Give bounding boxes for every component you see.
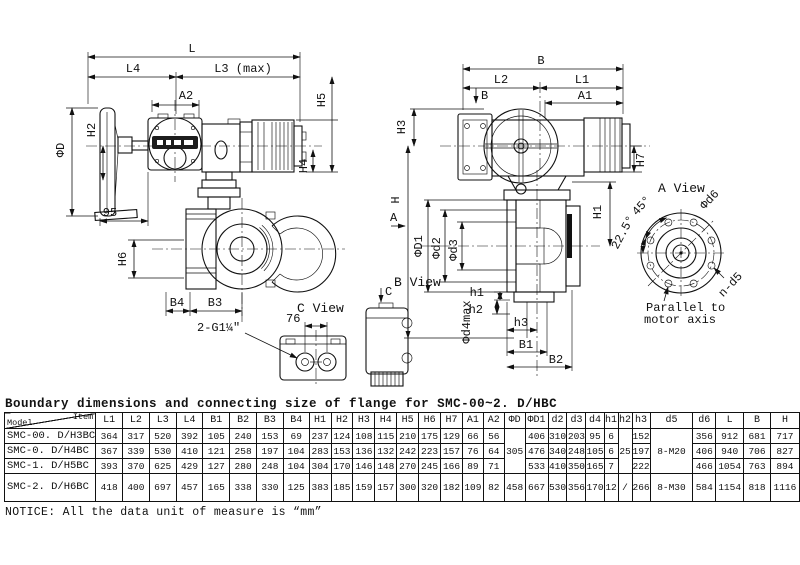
dim-label-L: L xyxy=(188,42,195,56)
table-cell: 383 xyxy=(309,474,331,502)
dim-label-phid2: Φd2 xyxy=(430,237,444,259)
dim-label-76: 76 xyxy=(286,312,300,326)
dim-label-phiD1: ΦD1 xyxy=(412,235,426,257)
table-cell: 1154 xyxy=(716,474,744,502)
table-cell: 697 xyxy=(149,474,176,502)
table-cell: 6 xyxy=(604,429,618,444)
table-cell: 270 xyxy=(397,459,419,474)
table-cell: 124 xyxy=(331,429,353,444)
col-header-B3: B3 xyxy=(257,413,284,429)
col-header-L2: L2 xyxy=(123,413,150,429)
table-cell: 132 xyxy=(375,444,397,459)
table-cell: 146 xyxy=(353,459,375,474)
a-view-flange: A View 45° 22.5° Φd6 n-d5 Parallel to mo… xyxy=(609,181,746,327)
table-cell: 197 xyxy=(257,444,284,459)
dim-label-B: B xyxy=(537,54,544,68)
table-row: SMC-2. D/H6BC418400697457165338330125383… xyxy=(5,474,800,502)
table-cell: 165 xyxy=(203,474,230,502)
table-cell: 367 xyxy=(96,444,123,459)
table-cell: 458 xyxy=(504,474,525,502)
table-cell: 339 xyxy=(123,444,150,459)
table-cell: 89 xyxy=(462,459,483,474)
dim-label-H5: H5 xyxy=(315,93,329,107)
dim-label-h3: h3 xyxy=(514,316,528,330)
table-cell: 7 xyxy=(604,459,618,474)
c-view-detail: C View 76 xyxy=(280,301,346,386)
table-cell: 258 xyxy=(230,444,257,459)
table-cell: 153 xyxy=(331,444,353,459)
col-header-A2: A2 xyxy=(483,413,504,429)
col-header-B4: B4 xyxy=(283,413,309,429)
right-view-front xyxy=(420,82,650,378)
dim-label-L1: L1 xyxy=(575,73,589,87)
table-cell: 170 xyxy=(586,474,604,502)
table-cell: 115 xyxy=(375,429,397,444)
table-cell: 406 xyxy=(693,444,716,459)
table-cell: 340 xyxy=(548,444,567,459)
table-cell: 71 xyxy=(483,459,504,474)
dim-label-H2: H2 xyxy=(85,123,99,137)
col-header-d2: d2 xyxy=(548,413,567,429)
table-cell: 584 xyxy=(693,474,716,502)
table-cell: 8-M30 xyxy=(650,474,693,502)
row-model-label: SMC-1. D/H5BC xyxy=(5,459,96,474)
col-header-ΦD: ΦD xyxy=(504,413,525,429)
dim-label-A2: A2 xyxy=(179,89,193,103)
col-header-H5: H5 xyxy=(397,413,419,429)
col-header-L3: L3 xyxy=(149,413,176,429)
col-header-H4: H4 xyxy=(375,413,397,429)
table-cell: 152 xyxy=(632,429,650,444)
table-cell: 418 xyxy=(96,474,123,502)
col-header-A1: A1 xyxy=(462,413,483,429)
right-view-dimensions: B L2 L1 A1 B H3 H A H1 H7 ΦD1 xyxy=(389,54,648,371)
dim-label-phiD: ΦD xyxy=(54,143,68,157)
model-item-header: Item Model xyxy=(5,413,96,429)
table-cell: 66 xyxy=(462,429,483,444)
table-cell: 392 xyxy=(176,429,203,444)
dim-label-H1: H1 xyxy=(591,205,605,219)
dim-label-L4: L4 xyxy=(126,62,140,76)
dim-label-H6: H6 xyxy=(116,252,130,266)
table-cell: 104 xyxy=(283,459,309,474)
table-cell: 136 xyxy=(353,444,375,459)
table-cell: 763 xyxy=(744,459,771,474)
dim-label-B2: B2 xyxy=(549,353,563,367)
dim-label-H3: H3 xyxy=(395,120,409,134)
table-cell: 12 xyxy=(604,474,618,502)
col-header-d5: d5 xyxy=(650,413,693,429)
dim-label-h1: h1 xyxy=(470,286,484,300)
dim-label-45deg: 45° xyxy=(629,193,654,218)
section-mark-B: B xyxy=(481,89,488,103)
item-header-label: Item xyxy=(73,413,93,422)
table-cell: 266 xyxy=(632,474,650,502)
dim-label-A1: A1 xyxy=(578,89,592,103)
table-cell: 280 xyxy=(230,459,257,474)
table-cell: 56 xyxy=(483,429,504,444)
table-cell: 203 xyxy=(567,429,586,444)
col-header-ΦD1: ΦD1 xyxy=(525,413,548,429)
table-cell: 69 xyxy=(283,429,309,444)
section-mark-C: C xyxy=(385,285,392,299)
dim-label-phid4max: Φd4max xyxy=(460,300,474,343)
row-model-label: SMC-2. D/H6BC xyxy=(5,474,96,502)
col-header-h1: h1 xyxy=(604,413,618,429)
table-cell: 310 xyxy=(548,429,567,444)
table-cell: 400 xyxy=(123,474,150,502)
col-header-H6: H6 xyxy=(419,413,441,429)
col-header-L: L xyxy=(716,413,744,429)
table-cell: 6 xyxy=(604,444,618,459)
table-cell: 320 xyxy=(419,474,441,502)
col-header-L1: L1 xyxy=(96,413,123,429)
dim-label-H7: H7 xyxy=(634,153,648,167)
col-header-B2: B2 xyxy=(230,413,257,429)
table-cell: 370 xyxy=(123,459,150,474)
table-cell: 109 xyxy=(462,474,483,502)
col-header-H7: H7 xyxy=(441,413,463,429)
table-cell: 429 xyxy=(176,459,203,474)
table-cell: 356 xyxy=(567,474,586,502)
table-header-row: Item Model L1L2L3L4B1B2B3B4H1H2H3H4H5H6H… xyxy=(5,413,800,429)
left-view-side xyxy=(86,100,345,322)
table-cell: 148 xyxy=(375,459,397,474)
table-cell: 818 xyxy=(744,474,771,502)
dim-label-H4: H4 xyxy=(297,159,311,173)
table-cell: 283 xyxy=(309,444,331,459)
table-cell: 105 xyxy=(586,444,604,459)
table-cell: 410 xyxy=(176,444,203,459)
row-model-label: SMC-00. D/H3BC xyxy=(5,429,96,444)
dim-label-L3max: L3 (max) xyxy=(214,62,272,76)
table-cell: 940 xyxy=(716,444,744,459)
table-cell: 1054 xyxy=(716,459,744,474)
table-cell: 197 xyxy=(632,444,650,459)
table-cell: 305 xyxy=(504,429,525,474)
table-cell: 717 xyxy=(770,429,799,444)
table-cell: 681 xyxy=(744,429,771,444)
table-cell: 894 xyxy=(770,459,799,474)
table-cell: 185 xyxy=(331,474,353,502)
table-cell: 8-M20 xyxy=(650,429,693,474)
col-header-d4: d4 xyxy=(586,413,604,429)
col-header-d6: d6 xyxy=(693,413,716,429)
table-cell: 223 xyxy=(419,444,441,459)
table-cell: 245 xyxy=(419,459,441,474)
table-cell: 104 xyxy=(283,444,309,459)
table-cell: 1116 xyxy=(770,474,799,502)
table-cell: 210 xyxy=(397,429,419,444)
table-cell: 248 xyxy=(567,444,586,459)
thread-callout: 2-G1¼" xyxy=(197,321,240,335)
table-cell: 350 xyxy=(567,459,586,474)
table-cell: 520 xyxy=(149,429,176,444)
table-cell: 827 xyxy=(770,444,799,459)
table-cell: 157 xyxy=(441,444,463,459)
table-cell: 706 xyxy=(744,444,771,459)
col-header-d3: d3 xyxy=(567,413,586,429)
table-cell: 129 xyxy=(441,429,463,444)
table-cell: 25 xyxy=(618,429,632,474)
table-cell: 330 xyxy=(257,474,284,502)
table-cell: 105 xyxy=(203,429,230,444)
row-model-label: SMC-0. D/H4BC xyxy=(5,444,96,459)
dim-label-L2: L2 xyxy=(494,73,508,87)
table-cell: 338 xyxy=(230,474,257,502)
table-cell: 166 xyxy=(441,459,463,474)
table-cell: 165 xyxy=(586,459,604,474)
table-cell: 300 xyxy=(397,474,419,502)
section-mark-A: A xyxy=(390,211,398,225)
dim-label-phid3: Φd3 xyxy=(447,239,461,261)
col-header-H1: H1 xyxy=(309,413,331,429)
col-header-B1: B1 xyxy=(203,413,230,429)
table-cell: 364 xyxy=(96,429,123,444)
table-cell: 317 xyxy=(123,429,150,444)
table-cell: 393 xyxy=(96,459,123,474)
b-view-title: B View xyxy=(394,275,441,290)
table-cell: 457 xyxy=(176,474,203,502)
table-cell: 476 xyxy=(525,444,548,459)
table-cell: 157 xyxy=(375,474,397,502)
col-header-H2: H2 xyxy=(331,413,353,429)
a-view-title: A View xyxy=(658,181,705,196)
table-cell: 108 xyxy=(353,429,375,444)
dim-label-95: 95 xyxy=(103,206,117,220)
table-cell: 410 xyxy=(548,459,567,474)
dim-label-H: H xyxy=(389,196,403,203)
actuator-dimension-drawing: L L4 L3 (max) A2 H5 H4 H2 ΦD 95 xyxy=(0,0,800,396)
table-cell: 159 xyxy=(353,474,375,502)
dim-label-B4: B4 xyxy=(170,296,184,310)
table-cell: 222 xyxy=(632,459,650,474)
col-header-H3: H3 xyxy=(353,413,375,429)
col-header-L4: L4 xyxy=(176,413,203,429)
col-header-h3: h3 xyxy=(632,413,650,429)
col-header-h2: h2 xyxy=(618,413,632,429)
table-cell: 170 xyxy=(331,459,353,474)
table-cell: 406 xyxy=(525,429,548,444)
model-header-label: Model xyxy=(7,419,33,428)
dimension-table: Item Model L1L2L3L4B1B2B3B4H1H2H3H4H5H6H… xyxy=(4,412,800,502)
table-cell: 530 xyxy=(149,444,176,459)
table-cell: 175 xyxy=(419,429,441,444)
table-cell: 237 xyxy=(309,429,331,444)
table-cell: 95 xyxy=(586,429,604,444)
dim-label-B3: B3 xyxy=(208,296,222,310)
table-cell: 121 xyxy=(203,444,230,459)
table-cell: 240 xyxy=(230,429,257,444)
table-cell: / xyxy=(618,474,632,502)
notice-text: NOTICE: All the data unit of measure is … xyxy=(5,506,800,519)
table-cell: 466 xyxy=(693,459,716,474)
table-cell: 912 xyxy=(716,429,744,444)
left-view-dimensions: L L4 L3 (max) A2 H5 H4 H2 ΦD 95 xyxy=(54,42,338,358)
table-title: Boundary dimensions and connecting size … xyxy=(5,397,800,411)
b-view-detail: B View C xyxy=(366,275,441,386)
table-cell: 64 xyxy=(483,444,504,459)
table-cell: 356 xyxy=(693,429,716,444)
dim-label-22-5deg: 22.5° xyxy=(609,213,638,251)
table-row: SMC-00. D/H3BC36431752039210524015369237… xyxy=(5,429,800,444)
table-cell: 242 xyxy=(397,444,419,459)
table-cell: 182 xyxy=(441,474,463,502)
table-cell: 127 xyxy=(203,459,230,474)
table-cell: 667 xyxy=(525,474,548,502)
table-cell: 153 xyxy=(257,429,284,444)
table-cell: 533 xyxy=(525,459,548,474)
technical-drawing-page: L L4 L3 (max) A2 H5 H4 H2 ΦD 95 xyxy=(0,0,800,565)
table-cell: 530 xyxy=(548,474,567,502)
dim-label-B1: B1 xyxy=(519,338,533,352)
col-header-B: B xyxy=(744,413,771,429)
table-cell: 625 xyxy=(149,459,176,474)
note-parallel-2: motor axis xyxy=(644,313,716,327)
table-cell: 304 xyxy=(309,459,331,474)
c-view-title: C View xyxy=(297,301,344,316)
col-header-H: H xyxy=(770,413,799,429)
table-cell: 82 xyxy=(483,474,504,502)
table-cell: 76 xyxy=(462,444,483,459)
table-cell: 248 xyxy=(257,459,284,474)
table-cell: 125 xyxy=(283,474,309,502)
